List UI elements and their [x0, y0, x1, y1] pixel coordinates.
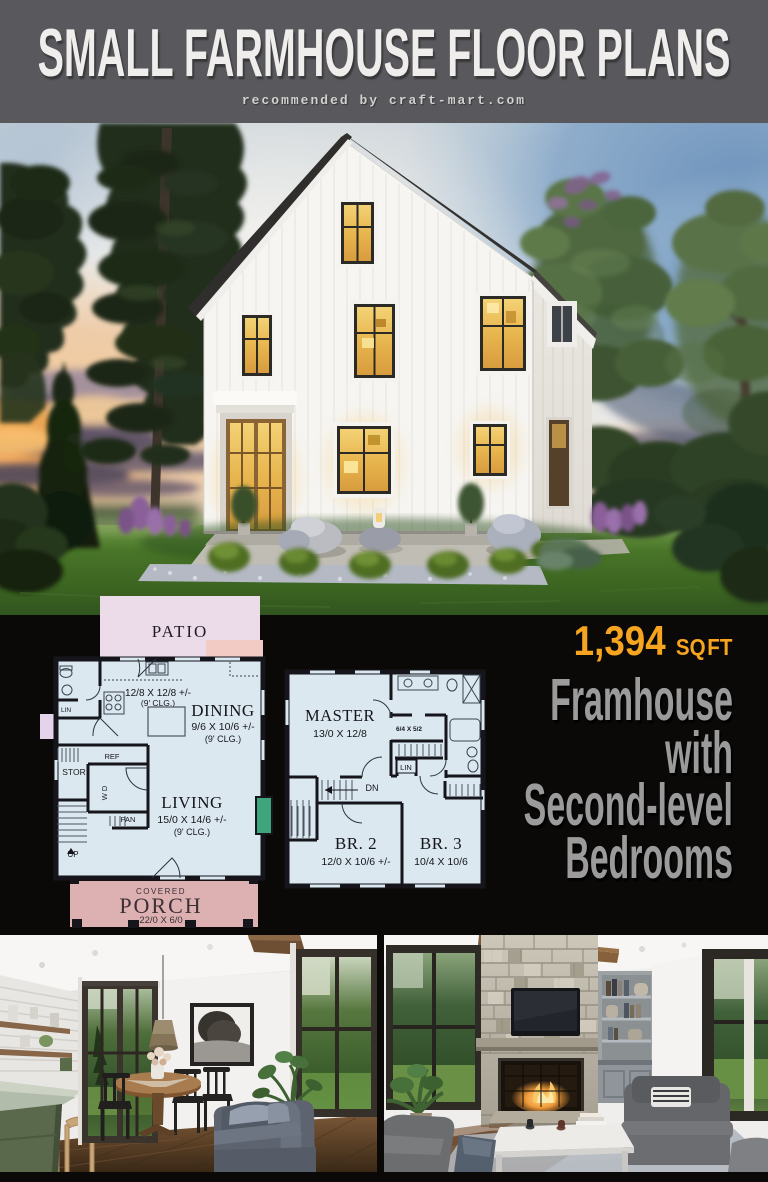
- svg-text:10/4 X 10/6: 10/4 X 10/6: [414, 856, 468, 868]
- svg-text:15/0 X 14/6 +/-: 15/0 X 14/6 +/-: [157, 814, 227, 826]
- svg-text:UP: UP: [67, 850, 78, 859]
- svg-text:9/6 X 10/6 +/-: 9/6 X 10/6 +/-: [191, 721, 255, 733]
- svg-text:22/0 X 6/0: 22/0 X 6/0: [139, 915, 182, 926]
- svg-text:STOR: STOR: [62, 767, 85, 777]
- svg-text:DINING: DINING: [191, 701, 254, 720]
- svg-text:LIVING: LIVING: [161, 793, 223, 812]
- svg-text:12/0 X 10/6 +/-: 12/0 X 10/6 +/-: [321, 856, 391, 868]
- svg-text:W D: W D: [100, 785, 109, 800]
- svg-text:(9' CLG.): (9' CLG.): [205, 734, 241, 744]
- svg-text:13/0 X 12/8: 13/0 X 12/8: [313, 728, 367, 740]
- svg-text:PATIO: PATIO: [152, 622, 209, 641]
- svg-text:LIN: LIN: [400, 763, 412, 772]
- svg-text:REF: REF: [105, 752, 120, 761]
- svg-text:LIN: LIN: [61, 707, 71, 714]
- svg-text:PAN: PAN: [121, 815, 136, 824]
- svg-text:BR. 3: BR. 3: [420, 834, 462, 853]
- svg-text:BR. 2: BR. 2: [335, 834, 377, 853]
- svg-text:DN: DN: [366, 783, 379, 793]
- svg-text:6/4 X 5/2: 6/4 X 5/2: [396, 726, 422, 733]
- svg-text:(9' CLG.): (9' CLG.): [174, 827, 210, 837]
- svg-text:MASTER: MASTER: [305, 706, 375, 725]
